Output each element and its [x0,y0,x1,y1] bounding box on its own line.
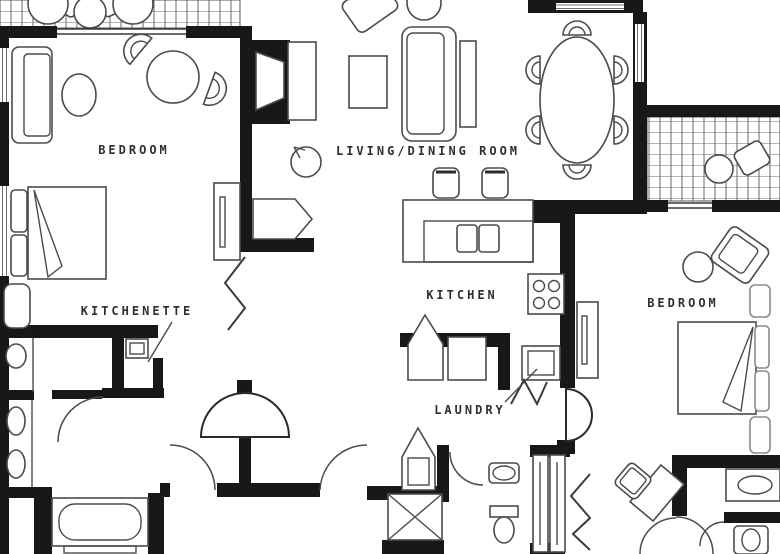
dining-chair-icon [526,116,540,144]
balcony-right [647,117,780,208]
dining-chair-icon [526,56,540,84]
window [635,24,644,82]
toilet-tank [734,526,768,554]
sink-basin-icon [479,225,499,252]
sofa-icon [402,27,456,141]
dining-chair-icon [614,56,628,84]
closet-icon [408,315,443,380]
nightstand-icon [750,417,770,453]
bedroom-left-label: BEDROOM [98,143,170,157]
window [0,186,9,276]
wall-segment [0,487,34,498]
stove-icon [528,274,564,314]
laundry-label: LAUNDRY [434,403,506,417]
laundry: LAUNDRY [408,315,560,417]
wall-segment [239,437,251,484]
bench-icon [4,284,30,328]
dining-chair-icon [614,116,628,144]
loveseat-icon [12,47,52,143]
entry-door-fan [201,393,289,437]
kitchenette-label: KITCHENETTE [81,304,193,318]
door-arc [58,397,103,442]
bathroom-center [388,428,519,543]
floor-plan-svg: BEDROOM KITCHENETTE [0,0,780,554]
closet-bifold-door [225,257,245,330]
pillow-icon [11,235,27,276]
wall-segment [724,512,780,523]
closet-icon [402,428,435,490]
wall-segment [148,493,164,554]
wall-segment [240,238,314,252]
armchair-icon [709,225,771,286]
tv-cabinet-icon [288,42,316,120]
kitchen: KITCHEN [403,168,564,314]
kitchenette [6,338,148,392]
sink-icon [7,407,25,435]
chair-icon [203,72,231,110]
toilet-tank [490,506,518,517]
sink-icon [7,450,25,478]
bedroom-right: BEDROOM [566,225,771,453]
wall-segment [112,338,124,395]
sink-basin-icon [457,225,477,252]
oval-table-icon [62,74,96,116]
wall-segment [0,390,34,400]
pillow-icon [755,371,769,411]
round-table-icon [147,51,199,103]
bed-icon [28,187,106,279]
dining-table-icon [540,37,614,163]
bathroom-left [7,397,148,553]
bathtub-icon [52,498,148,546]
armchair-icon [340,0,400,35]
door-arc [170,445,215,490]
coffee-table-icon [349,56,387,108]
bedroom-left: BEDROOM KITCHENETTE [4,27,245,362]
kitchen-label: KITCHEN [426,288,498,302]
wall-segment [645,200,668,212]
side-table-icon [683,252,713,282]
door-arc [676,517,713,554]
wall-segment [240,26,252,240]
wall-segment [382,540,444,554]
wall-segment [572,200,647,214]
pillow-icon [755,326,769,368]
sink-icon [6,344,26,368]
wall-segment [153,358,163,390]
closet-bifold-door [571,474,590,550]
cabinet-icon [448,337,486,380]
closet-icon [253,199,312,239]
dining-chair-icon [563,21,591,35]
bifold-door [511,380,547,404]
door-fan [566,389,592,441]
dining-chair-icon [563,165,591,179]
window [0,48,9,102]
wall-segment [712,200,780,212]
door-arc [640,518,676,554]
toilet-icon [494,517,514,543]
bed-icon [678,322,756,414]
bathroom-right-area [533,455,780,554]
wall-segment [217,483,320,497]
wall-segment [8,325,158,338]
wall-segment [531,200,561,223]
bathtub-step [64,546,136,553]
patio-table-icon [705,155,733,183]
chair-icon [117,27,152,64]
wall-segment [643,105,780,117]
plant-icon [291,147,321,177]
dresser-icon [214,183,240,260]
wall-segment [34,487,52,554]
round-table-icon [407,0,441,20]
wall-segment [498,347,510,390]
pillow-icon [11,190,27,232]
entry-foyer [170,393,367,490]
door-arc [450,452,483,485]
nightstand-icon [750,285,770,317]
floor-plan: BEDROOM KITCHENETTE [0,0,780,554]
wall-segment [672,455,780,468]
sofa-table-icon [460,41,476,127]
door-arc [320,445,367,490]
bedroom-right-label: BEDROOM [647,296,719,310]
patio-table-icon [74,0,106,28]
living-dining-label: LIVING/DINING ROOM [336,144,520,158]
